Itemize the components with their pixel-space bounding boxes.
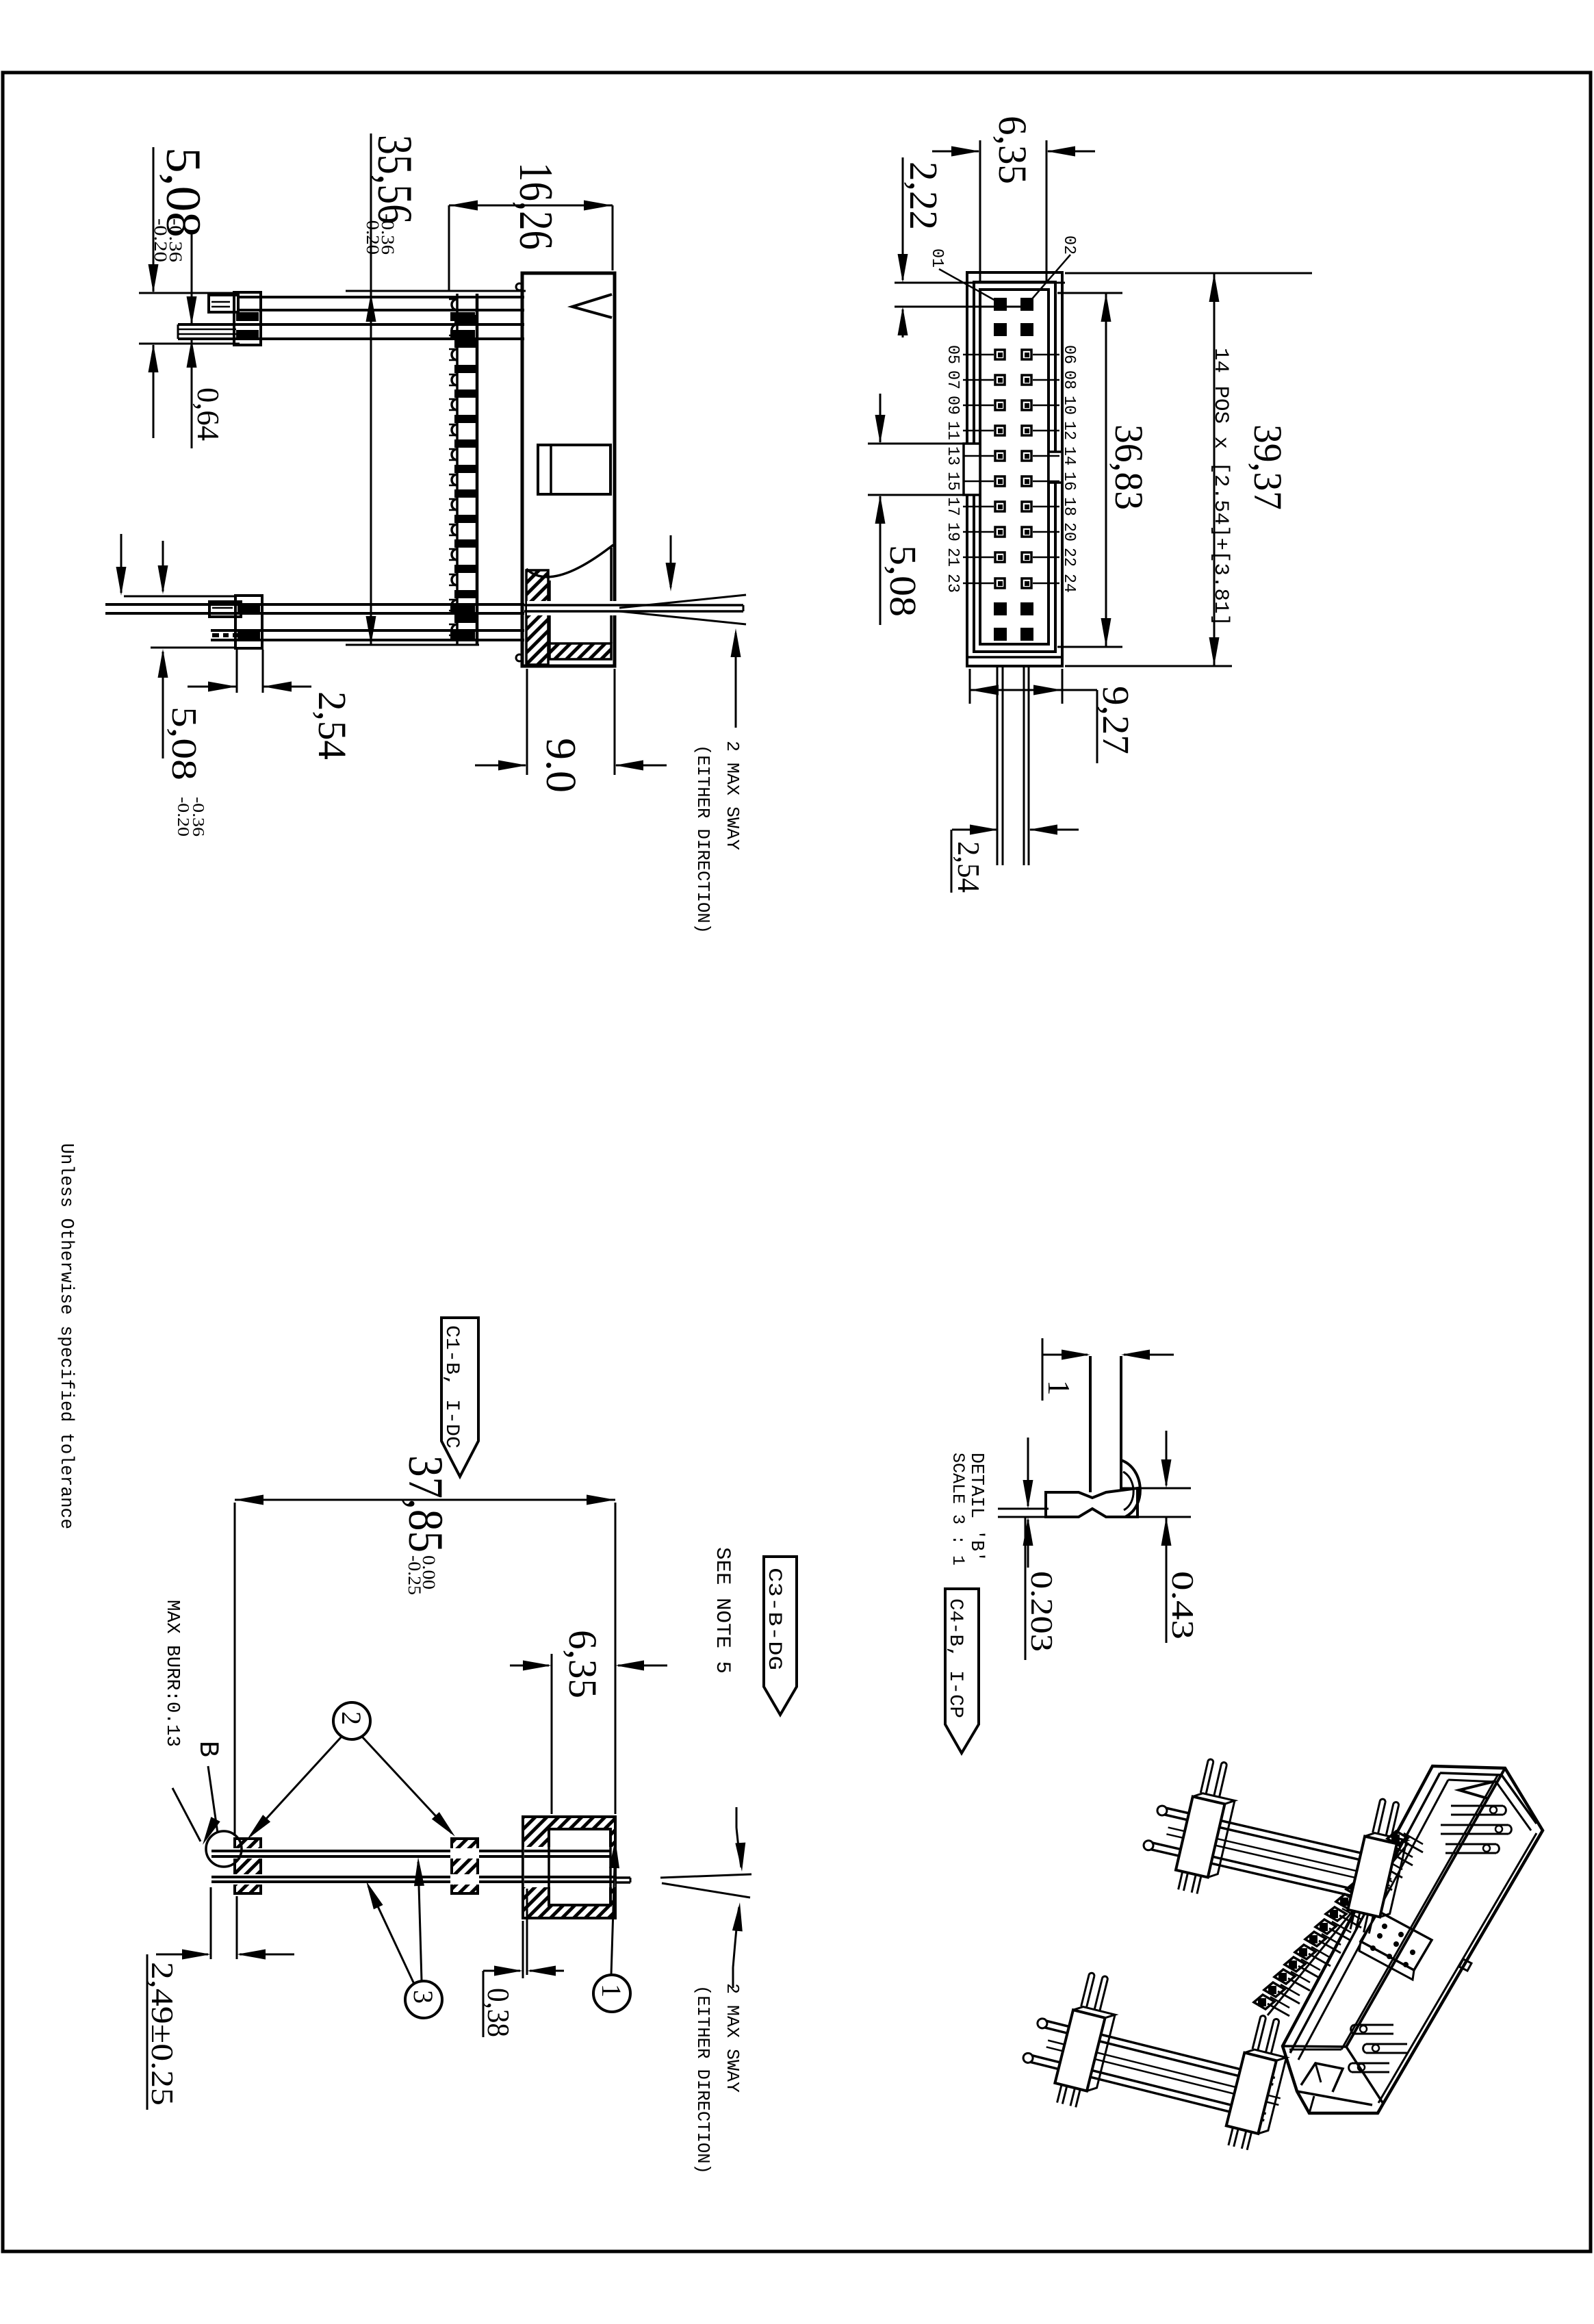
svg-text:02: 02 [1059,235,1078,255]
svg-text:14 POS x [2.54]+[3.81]: 14 POS x [2.54]+[3.81] [1209,348,1232,626]
svg-text:08: 08 [1059,370,1078,390]
svg-text:18: 18 [1059,497,1078,516]
svg-text:14: 14 [1059,446,1078,465]
svg-text:2: 2 [336,1711,367,1725]
svg-text:(EITHER DIRECTION): (EITHER DIRECTION) [693,1985,713,2174]
svg-text:12: 12 [1059,421,1078,440]
svg-text:35,56: 35,56 [368,135,422,224]
svg-text:SEE NOTE 5: SEE NOTE 5 [710,1547,734,1674]
svg-text:C1-B, I-DC: C1-B, I-DC [441,1325,462,1448]
svg-text:16: 16 [1059,472,1078,491]
svg-text:22: 22 [1059,548,1078,567]
svg-text:2,54: 2,54 [951,841,986,893]
svg-text:10: 10 [1059,396,1078,415]
svg-text:C4-B, I-CP: C4-B, I-CP [944,1598,966,1718]
svg-text:-0.20: -0.20 [174,797,192,837]
svg-text:0,38: 0,38 [481,1988,515,2037]
svg-text:17: 17 [943,497,962,516]
svg-text:21: 21 [943,548,962,567]
svg-text:(EITHER DIRECTION): (EITHER DIRECTION) [693,745,713,934]
svg-text:39,37: 39,37 [1246,424,1290,510]
svg-text:2,54: 2,54 [310,691,355,760]
svg-text:-0.20: -0.20 [151,218,170,262]
svg-text:C3-B-DG: C3-B-DG [763,1568,784,1670]
svg-text:0.43: 0.43 [1166,1571,1200,1639]
svg-text:-0.25: -0.25 [404,1555,424,1595]
svg-text:2 MAX SWAY: 2 MAX SWAY [722,1983,743,2093]
svg-text:07: 07 [943,370,962,390]
svg-text:2,22: 2,22 [901,162,946,230]
svg-text:36,83: 36,83 [1107,424,1151,510]
svg-text:5,08: 5,08 [164,706,203,780]
svg-text:2 MAX SWAY: 2 MAX SWAY [722,741,743,850]
svg-text:Unless Otherwise specified tol: Unless Otherwise specified tolerance [55,1143,76,1529]
svg-text:1: 1 [1042,1380,1076,1396]
svg-text:23: 23 [943,574,962,593]
svg-text:0,64: 0,64 [191,387,226,441]
svg-text:06: 06 [1059,345,1078,364]
svg-text:15: 15 [943,472,962,491]
svg-text:9,27: 9,27 [1095,686,1137,754]
svg-text:5,08: 5,08 [882,545,924,617]
svg-text:6,35: 6,35 [990,116,1035,184]
svg-text:6,35: 6,35 [561,1630,605,1698]
svg-text:05: 05 [943,345,962,364]
svg-text:1: 1 [596,1984,627,1997]
svg-text:37,85: 37,85 [398,1455,453,1553]
svg-text:16,26: 16,26 [509,162,562,250]
svg-text:3: 3 [408,1990,439,2004]
svg-text:DETAIL 'B': DETAIL 'B' [966,1453,986,1562]
svg-text:-0.20: -0.20 [363,214,383,255]
svg-text:9.0: 9.0 [537,738,584,793]
svg-text:13: 13 [943,446,962,465]
svg-text:11: 11 [943,421,962,440]
svg-text:20: 20 [1059,522,1078,541]
svg-text:MAX BURR:0.13: MAX BURR:0.13 [162,1600,182,1747]
svg-text:B: B [192,1741,222,1757]
svg-text:01: 01 [927,248,946,268]
svg-text:0.203: 0.203 [1025,1571,1059,1652]
svg-text:2,49±0.25: 2,49±0.25 [145,1962,179,2106]
svg-text:24: 24 [1059,574,1078,593]
svg-text:19: 19 [943,522,962,541]
svg-text:SCALE 3 : 1: SCALE 3 : 1 [948,1453,968,1566]
svg-text:09: 09 [943,396,962,415]
